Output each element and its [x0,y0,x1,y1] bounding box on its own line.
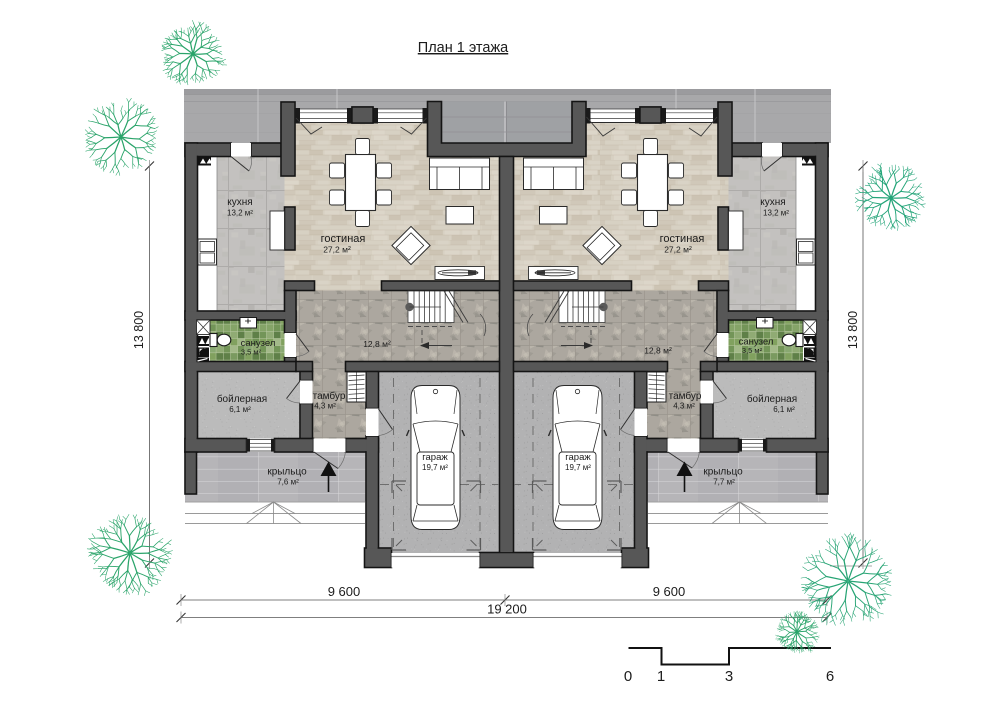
svg-text:крыльцо: крыльцо [703,467,743,478]
svg-text:1: 1 [657,668,665,685]
svg-text:6,1 м²: 6,1 м² [773,405,795,414]
svg-text:6: 6 [826,668,834,685]
svg-text:3,5 м²: 3,5 м² [241,348,262,357]
svg-text:4,3 м²: 4,3 м² [673,402,695,411]
svg-text:6,1 м²: 6,1 м² [229,405,251,414]
svg-text:12,8 м²: 12,8 м² [363,339,391,349]
svg-text:7,6 м²: 7,6 м² [277,478,299,487]
svg-text:13 800: 13 800 [846,311,860,349]
svg-text:3,5 м²: 3,5 м² [742,346,763,355]
svg-text:27,2 м²: 27,2 м² [323,245,351,255]
svg-text:0: 0 [624,668,632,685]
svg-text:План 1 этажа: План 1 этажа [418,40,509,56]
svg-text:7,7 м²: 7,7 м² [713,478,735,487]
svg-text:19,7 м²: 19,7 м² [422,463,448,472]
svg-text:гараж: гараж [565,452,591,463]
svg-text:27,2 м²: 27,2 м² [664,245,692,255]
svg-text:гостиная: гостиная [321,233,366,245]
svg-text:3: 3 [725,668,733,685]
svg-text:тамбур: тамбур [313,390,346,402]
svg-text:12,8 м²: 12,8 м² [644,346,672,356]
svg-text:9 600: 9 600 [653,584,686,599]
svg-text:кухня: кухня [227,197,252,208]
svg-text:кухня: кухня [760,197,785,208]
svg-text:13,2 м²: 13,2 м² [227,209,253,218]
svg-text:крыльцо: крыльцо [267,467,307,478]
svg-text:гараж: гараж [422,452,448,463]
svg-text:13,2 м²: 13,2 м² [763,209,789,218]
svg-text:гостиная: гостиная [660,233,705,245]
svg-text:19 200: 19 200 [487,602,527,617]
svg-text:тамбур: тамбур [669,390,702,402]
svg-text:9 600: 9 600 [328,584,361,599]
svg-text:бойлерная: бойлерная [217,393,267,405]
svg-text:19,7 м²: 19,7 м² [565,463,591,472]
svg-text:бойлерная: бойлерная [747,393,797,405]
svg-text:4,3 м²: 4,3 м² [314,402,336,411]
svg-text:13 800: 13 800 [132,311,146,349]
